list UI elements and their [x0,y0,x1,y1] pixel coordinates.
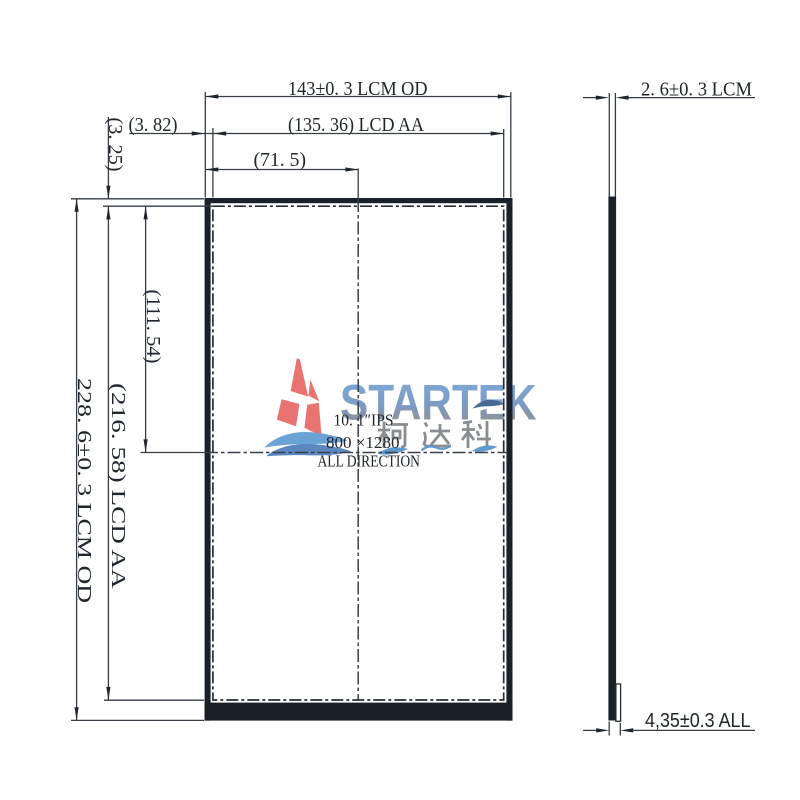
svg-text:228. 6±0. 3 LCM OD: 228. 6±0. 3 LCM OD [73,378,95,603]
svg-text:(3. 25): (3. 25) [104,118,126,172]
svg-text:ALL DIRECTION: ALL DIRECTION [318,452,421,471]
svg-text:143±0. 3 LCM OD: 143±0. 3 LCM OD [288,78,428,100]
svg-text:10. 1″IPS: 10. 1″IPS [334,411,394,430]
svg-text:(216. 58) LCD AA: (216. 58) LCD AA [107,383,129,589]
svg-text:(3. 82): (3. 82) [129,114,178,136]
svg-text:(135. 36) LCD AA: (135. 36) LCD AA [288,114,424,136]
svg-text:(111. 54): (111. 54) [142,290,164,364]
svg-text:2. 6±0. 3 LCM: 2. 6±0. 3 LCM [641,79,752,101]
svg-text:4,35±0.3 ALL: 4,35±0.3 ALL [645,709,751,732]
svg-text:800 ×1280: 800 ×1280 [326,433,400,452]
svg-text:(71. 5): (71. 5) [254,149,307,171]
